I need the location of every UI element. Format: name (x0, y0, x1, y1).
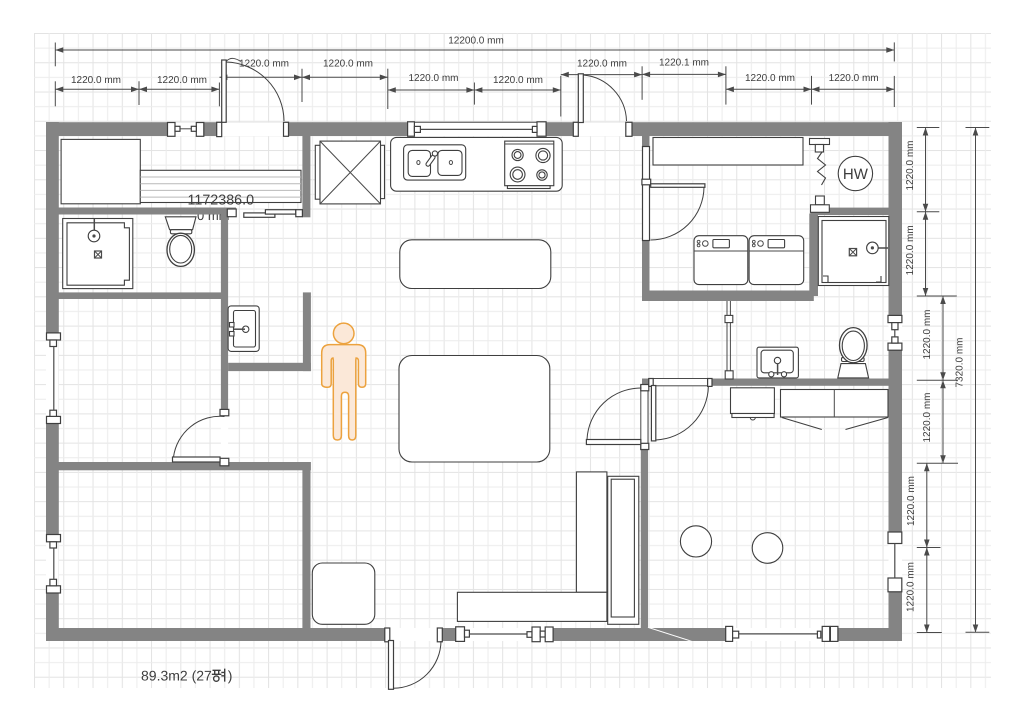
svg-text:1220.0 mm: 1220.0 mm (493, 75, 543, 86)
svg-text:1220.0 mm: 1220.0 mm (906, 562, 917, 612)
svg-text:1172386.0: 1172386.0 (188, 193, 255, 209)
svg-text:HW: HW (843, 166, 869, 183)
svg-text:1220.0 mm: 1220.0 mm (905, 225, 916, 275)
svg-text:1220.0 mm: 1220.0 mm (829, 73, 879, 84)
svg-text:1220.0 mm: 1220.0 mm (577, 59, 627, 70)
svg-text:12200.0 mm: 12200.0 mm (448, 36, 504, 47)
svg-text:1220.0 mm: 1220.0 mm (922, 309, 933, 359)
svg-text:1220.0 mm: 1220.0 mm (906, 476, 917, 526)
svg-text:1220.0 mm: 1220.0 mm (323, 59, 373, 70)
svg-text:1220.0 mm: 1220.0 mm (922, 392, 933, 442)
svg-text:89.3m2 (27: 89.3m2 (27 (141, 668, 212, 684)
svg-text:1220.0 mm: 1220.0 mm (408, 73, 458, 84)
svg-text:1220.0 mm: 1220.0 mm (157, 75, 207, 86)
svg-text:1220.0 mm: 1220.0 mm (239, 59, 289, 70)
svg-text:1220.0 mm: 1220.0 mm (71, 75, 121, 86)
svg-text:1220.0 mm: 1220.0 mm (745, 73, 795, 84)
svg-text:1220.0 mm: 1220.0 mm (905, 140, 916, 190)
svg-text:1220.1 mm: 1220.1 mm (659, 58, 709, 69)
svg-text:): ) (228, 668, 233, 684)
